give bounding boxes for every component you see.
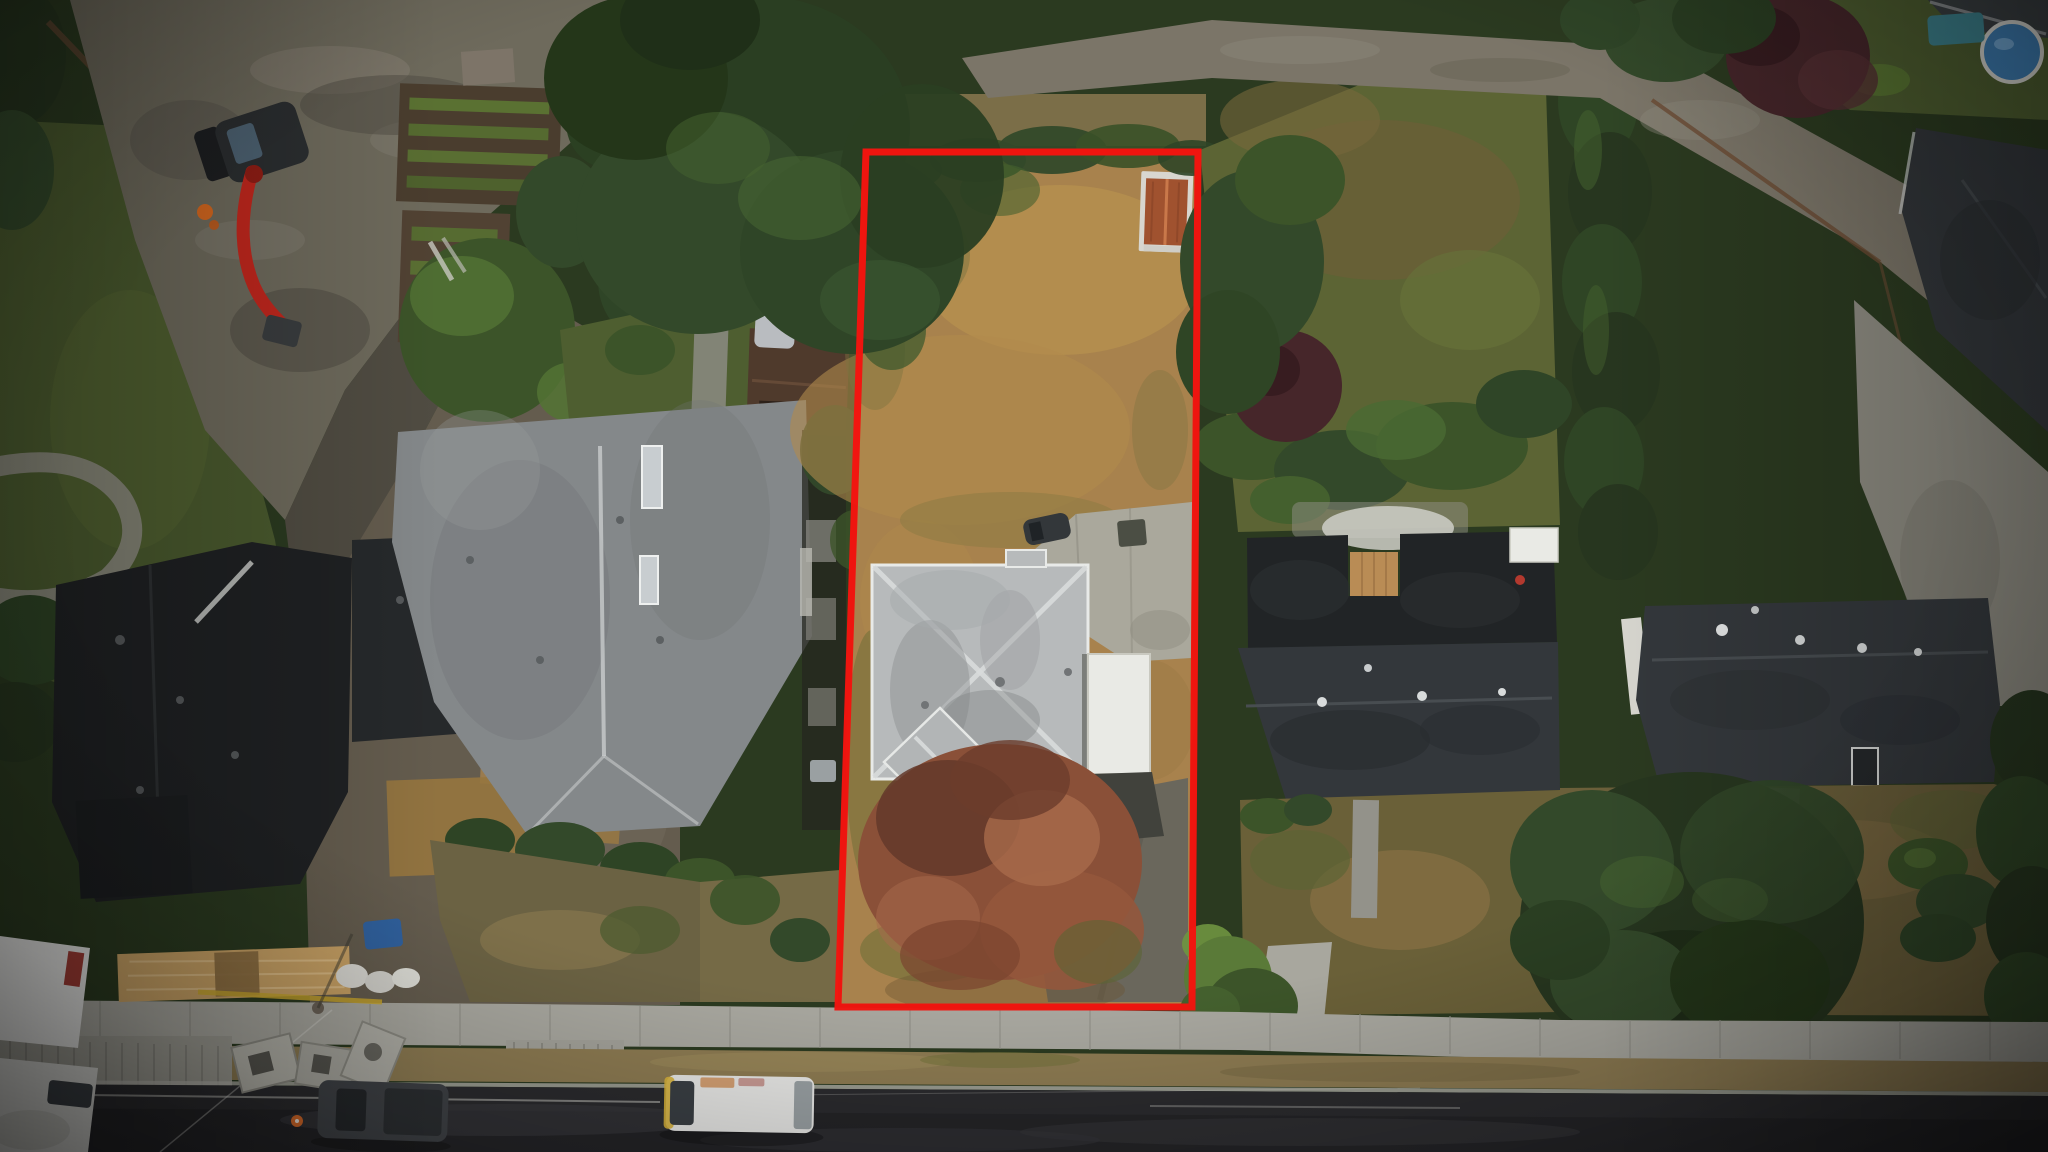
aerial-photo [0, 0, 2048, 1152]
vignette [0, 0, 2048, 1152]
aerial-photo-canvas [0, 0, 2048, 1152]
